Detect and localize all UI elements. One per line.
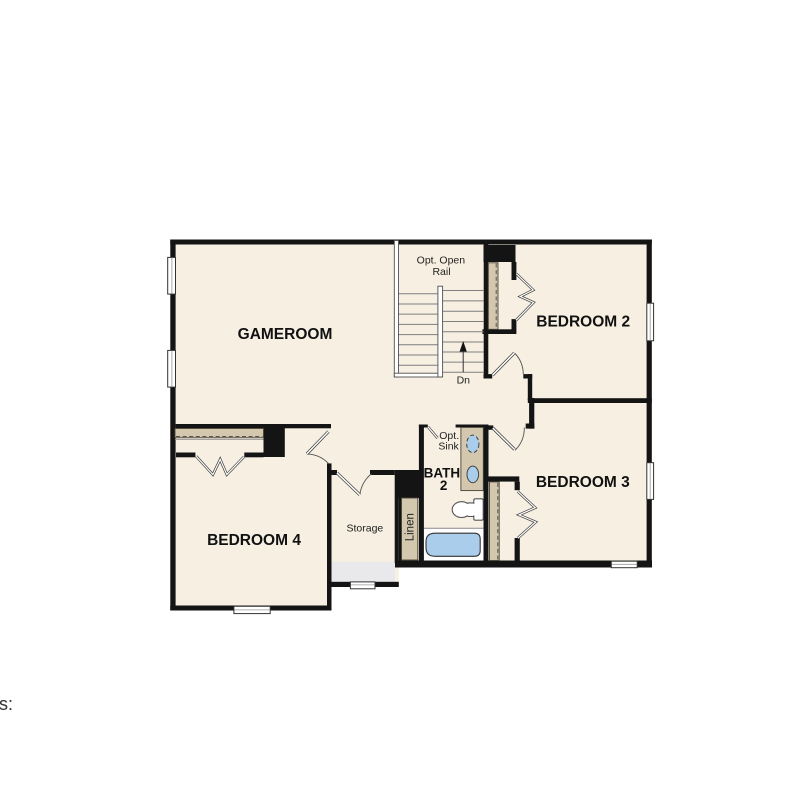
svg-text:Opt. Open: Opt. Open [417,255,466,267]
svg-text:Sink: Sink [438,440,459,452]
svg-text:BEDROOM 4: BEDROOM 4 [207,532,301,549]
svg-text:Linen: Linen [404,513,416,541]
svg-text:GAMEROOM: GAMEROOM [238,326,333,343]
svg-text:2: 2 [440,478,448,493]
svg-text:Rail: Rail [432,266,450,278]
svg-text:Storage: Storage [347,522,384,534]
svg-text:BEDROOM 2: BEDROOM 2 [536,313,630,330]
svg-text:Dn: Dn [457,374,471,386]
svg-text:BEDROOM 3: BEDROOM 3 [536,474,630,491]
